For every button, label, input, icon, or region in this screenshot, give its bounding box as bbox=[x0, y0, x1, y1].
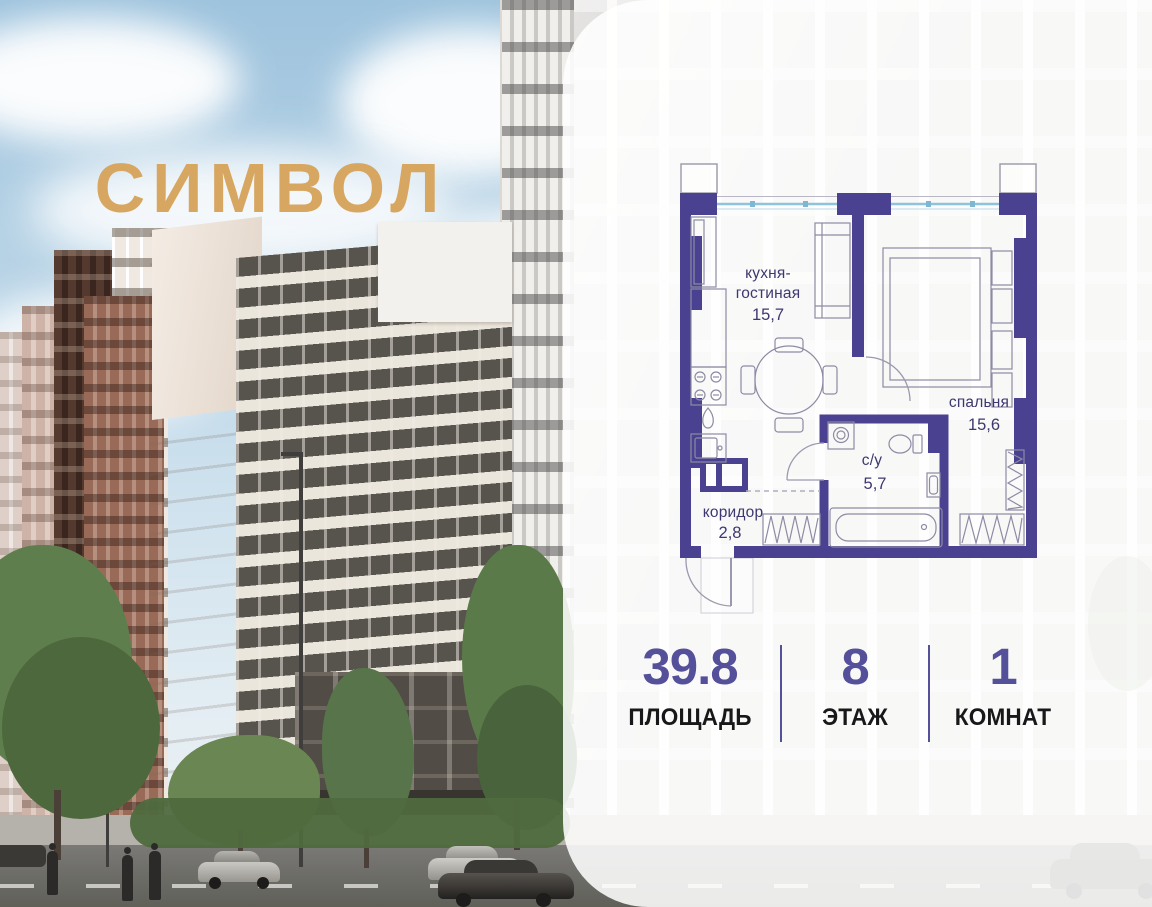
tree bbox=[0, 545, 160, 845]
stat-rooms: 1 КОМНАТ bbox=[930, 641, 1076, 732]
floor-value: 8 bbox=[782, 641, 928, 693]
parked-car bbox=[0, 842, 46, 867]
street-lamp-arm bbox=[281, 452, 303, 456]
area-value: 39.8 bbox=[600, 641, 780, 693]
car-body bbox=[0, 845, 46, 867]
pedestrian bbox=[122, 855, 133, 901]
living-room-furniture bbox=[741, 223, 850, 432]
stat-area: 39.8 ПЛОЩАДЬ bbox=[600, 641, 780, 732]
pedestrian bbox=[47, 851, 58, 895]
pedestrian bbox=[149, 851, 161, 900]
area-label: ПЛОЩАДЬ bbox=[605, 704, 774, 732]
car-wheel bbox=[536, 893, 551, 907]
rooms-value: 1 bbox=[930, 641, 1076, 693]
modern-building-parapet bbox=[378, 222, 512, 322]
bathroom-label: с/у bbox=[862, 452, 882, 469]
silver-car bbox=[198, 851, 280, 889]
car-wheel bbox=[209, 877, 221, 889]
kitchen-living-label-2: гостиная bbox=[736, 285, 801, 302]
stairwell-corridor bbox=[701, 558, 753, 613]
bathroom-area: 5,7 bbox=[864, 475, 887, 493]
pedestrian-head bbox=[151, 843, 158, 850]
project-logo: СИМВОЛ bbox=[68, 150, 473, 227]
dark-car bbox=[438, 860, 574, 907]
tree-trunk bbox=[54, 790, 61, 860]
stat-floor: 8 ЭТАЖ bbox=[782, 641, 928, 732]
corridor-label: коридор bbox=[703, 504, 764, 521]
pedestrian-head bbox=[49, 843, 56, 850]
floor-plan: кухня- гостиная 15,7 спальня 15,6 с/у 5,… bbox=[678, 158, 1040, 623]
pedestrian-head bbox=[124, 847, 131, 854]
car-wheel bbox=[456, 893, 471, 907]
corridor-area: 2,8 bbox=[719, 524, 742, 542]
balcony-stubs bbox=[681, 164, 1036, 193]
car-wheel bbox=[257, 877, 269, 889]
rooms-label: КОМНАТ bbox=[934, 704, 1071, 732]
bushes bbox=[130, 798, 570, 848]
tree-foliage bbox=[2, 637, 160, 819]
corridor-closet bbox=[703, 461, 745, 489]
bedroom-label: спальня bbox=[949, 394, 1009, 411]
kitchen-living-label-1: кухня- bbox=[745, 265, 791, 282]
kitchen-living-area: 15,7 bbox=[752, 306, 784, 324]
bedroom-area: 15,6 bbox=[968, 416, 1000, 434]
listing-card: СИМВОЛ bbox=[0, 0, 1152, 907]
apartment-stats: 39.8 ПЛОЩАДЬ 8 ЭТАЖ 1 КОМНАТ bbox=[600, 641, 1078, 742]
floor-label: ЭТАЖ bbox=[786, 704, 923, 732]
